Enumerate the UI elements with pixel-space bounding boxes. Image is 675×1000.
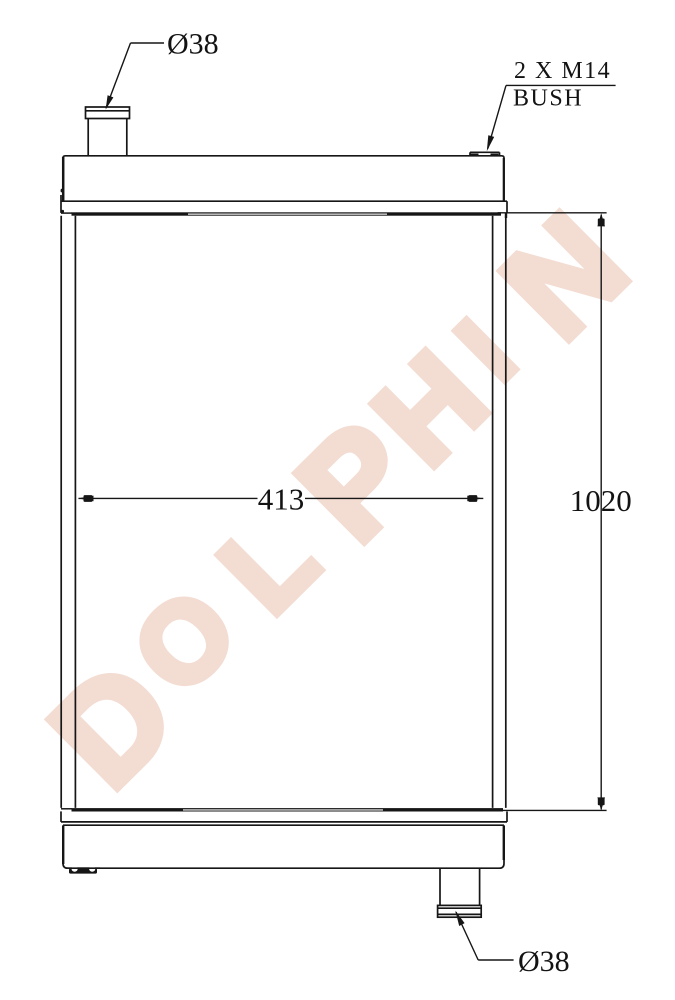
svg-text:Ø38: Ø38 (518, 945, 570, 978)
svg-text:BUSH: BUSH (513, 85, 583, 111)
svg-text:Ø38: Ø38 (167, 28, 219, 61)
svg-text:413: 413 (258, 481, 305, 516)
svg-text:2 X M14: 2 X M14 (514, 58, 611, 84)
svg-text:1020: 1020 (570, 483, 632, 518)
